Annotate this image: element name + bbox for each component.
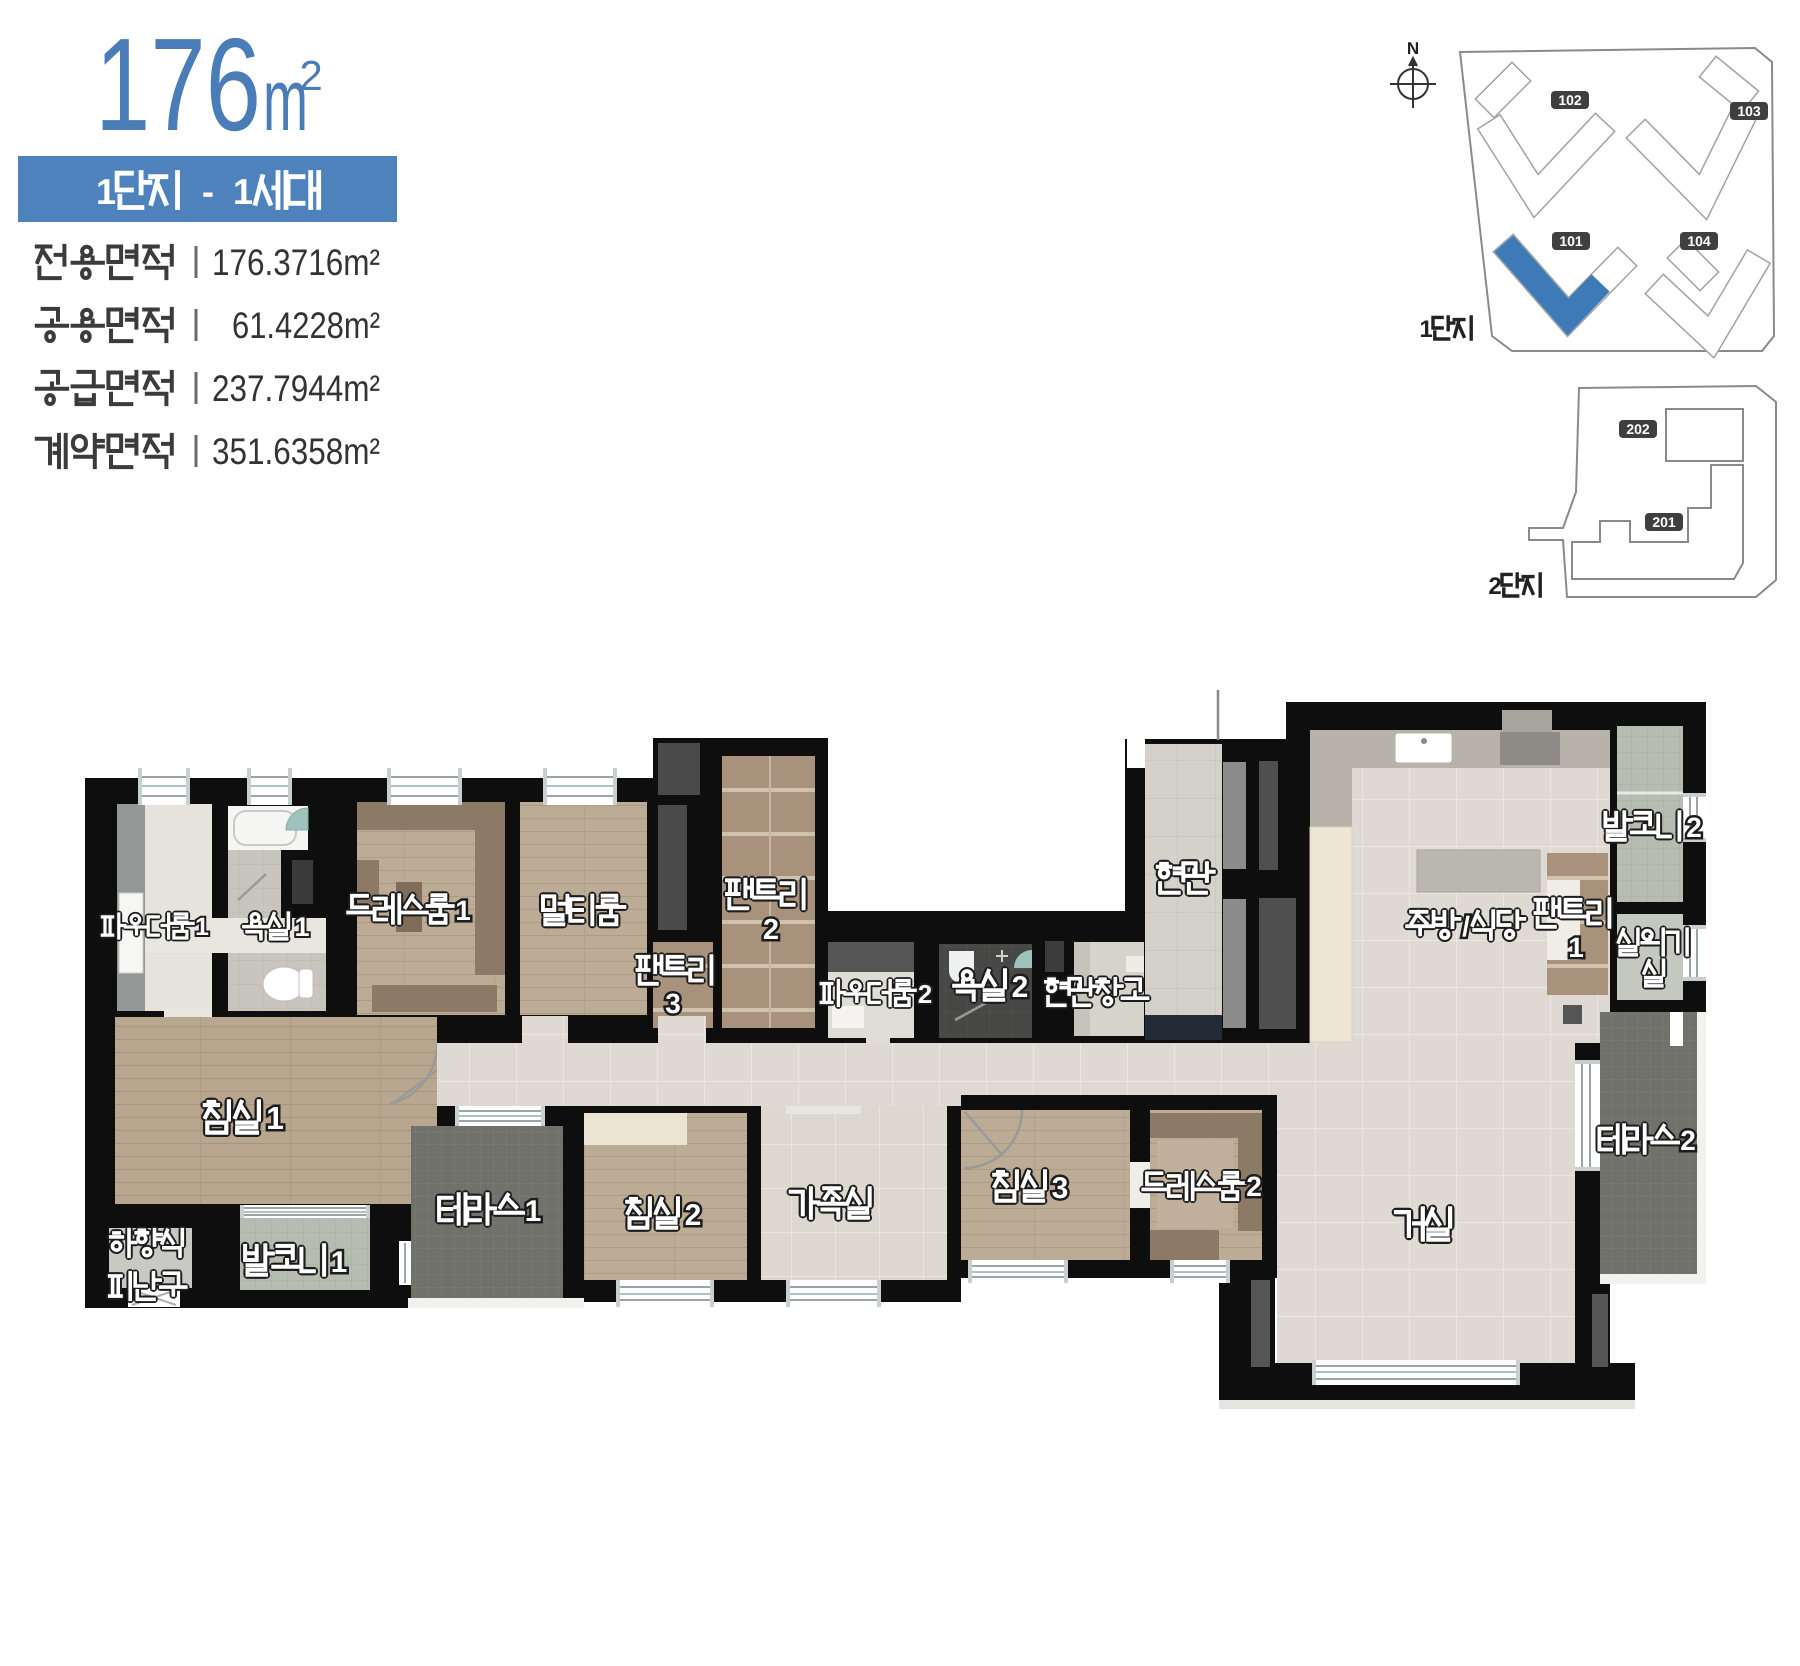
svg-text:2: 2 — [1012, 971, 1029, 1004]
svg-text:351.6358m²: 351.6358m² — [212, 431, 380, 472]
svg-text:1: 1 — [266, 1100, 284, 1136]
svg-text:3: 3 — [1052, 1172, 1069, 1205]
svg-text:104: 104 — [1687, 233, 1711, 249]
svg-text:2: 2 — [1686, 812, 1702, 843]
svg-text:237.7944m²: 237.7944m² — [212, 368, 380, 409]
svg-text:201: 201 — [1652, 514, 1676, 530]
svg-text:2: 2 — [1680, 1125, 1696, 1156]
svg-text:102: 102 — [1558, 92, 1582, 108]
svg-text:176: 176 — [95, 11, 261, 158]
svg-text:176.3716m²: 176.3716m² — [212, 242, 380, 283]
svg-text:2: 2 — [763, 914, 779, 946]
svg-text:2: 2 — [1246, 1171, 1262, 1202]
svg-text:202: 202 — [1626, 421, 1650, 437]
svg-text:1: 1 — [331, 1246, 348, 1279]
svg-text:1: 1 — [233, 171, 253, 212]
svg-text:1: 1 — [455, 895, 471, 926]
svg-text:1: 1 — [96, 171, 116, 212]
svg-text:-: - — [202, 171, 214, 212]
svg-text:1: 1 — [1568, 932, 1584, 963]
svg-text:2: 2 — [918, 979, 932, 1009]
svg-text:1: 1 — [1419, 316, 1432, 343]
svg-text:N: N — [1407, 39, 1419, 58]
svg-text:1: 1 — [195, 913, 209, 941]
svg-text:2: 2 — [685, 1199, 702, 1232]
svg-text:3: 3 — [665, 988, 681, 1019]
svg-text:1: 1 — [525, 1195, 542, 1228]
svg-text:101: 101 — [1559, 233, 1583, 249]
svg-text:103: 103 — [1737, 103, 1761, 119]
svg-text:2: 2 — [299, 52, 322, 99]
svg-text:61.4228m²: 61.4228m² — [232, 305, 380, 346]
svg-text:/: / — [1462, 911, 1470, 942]
svg-text:1: 1 — [294, 912, 309, 942]
svg-text:2: 2 — [1488, 573, 1501, 600]
